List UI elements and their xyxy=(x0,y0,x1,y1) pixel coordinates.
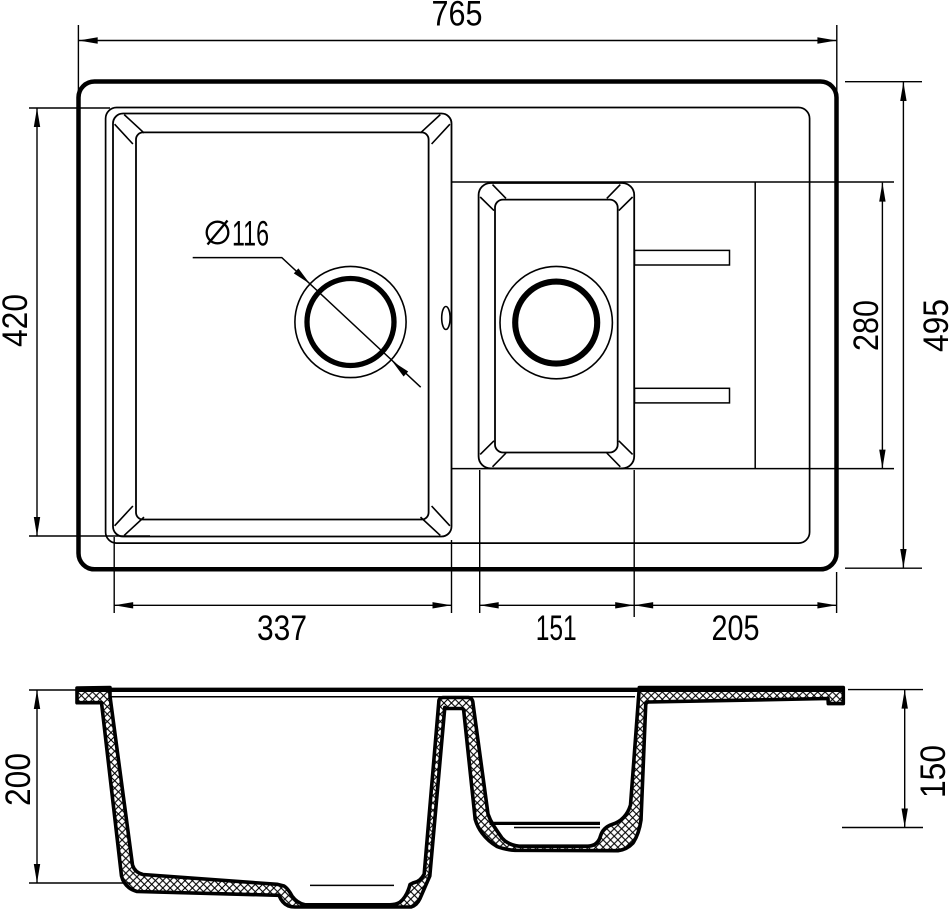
svg-text:200: 200 xyxy=(0,753,38,806)
svg-text:205: 205 xyxy=(712,609,760,648)
svg-text:765: 765 xyxy=(432,0,483,34)
svg-text:151: 151 xyxy=(536,609,577,648)
svg-text:495: 495 xyxy=(917,299,951,352)
svg-text:337: 337 xyxy=(257,609,307,648)
svg-text:420: 420 xyxy=(0,294,35,347)
svg-text:280: 280 xyxy=(847,300,886,351)
svg-text:116: 116 xyxy=(232,215,269,254)
svg-text:150: 150 xyxy=(914,745,951,798)
